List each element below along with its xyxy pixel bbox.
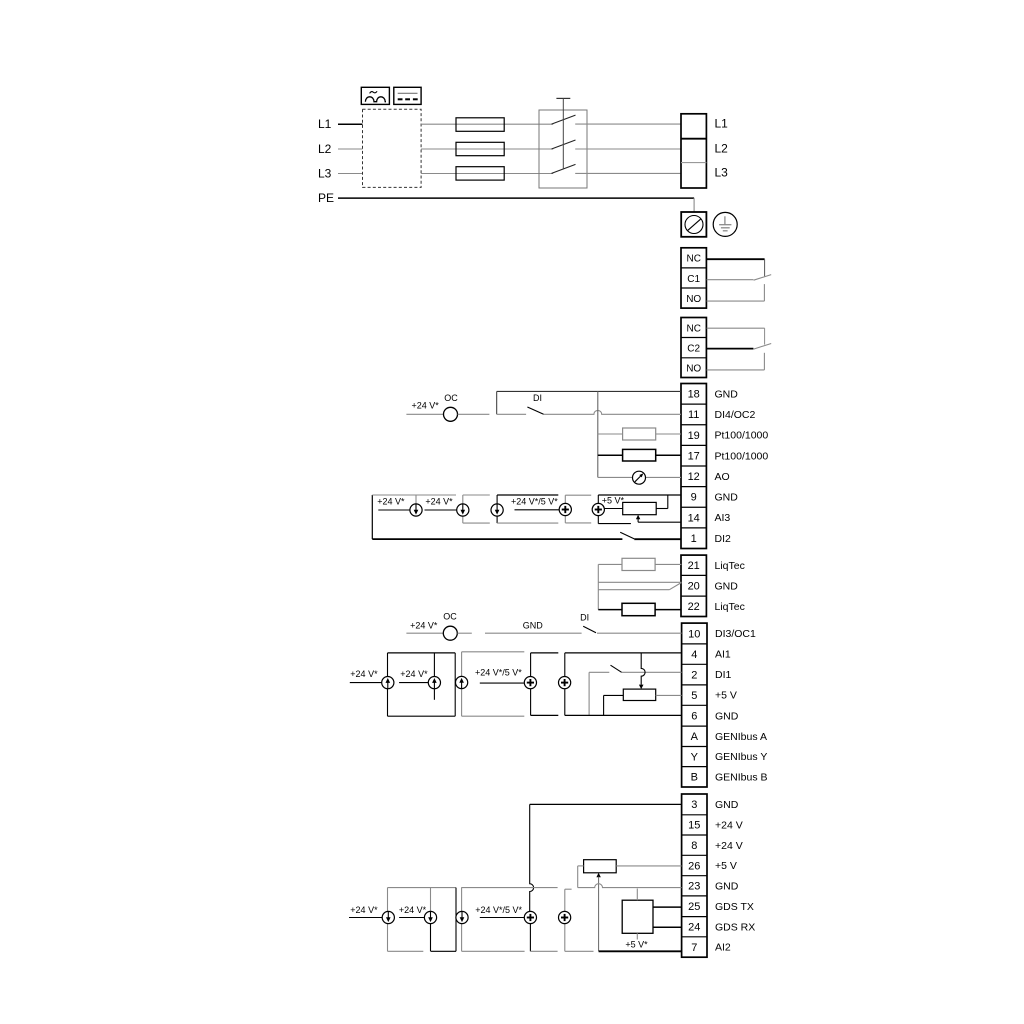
svg-text:OC: OC bbox=[443, 612, 457, 622]
svg-text:NC: NC bbox=[686, 254, 700, 265]
svg-text:+24 V*/5 V*: +24 V*/5 V* bbox=[475, 668, 522, 678]
svg-text:L3: L3 bbox=[715, 166, 729, 180]
svg-text:AO: AO bbox=[715, 471, 730, 483]
svg-text:L1: L1 bbox=[318, 117, 332, 131]
svg-text:GND: GND bbox=[715, 880, 739, 892]
svg-text:+24 V*: +24 V* bbox=[425, 497, 453, 507]
svg-text:+24 V*: +24 V* bbox=[412, 401, 440, 411]
svg-text:NO: NO bbox=[686, 363, 701, 374]
svg-text:+24 V*: +24 V* bbox=[399, 905, 427, 915]
svg-text:21: 21 bbox=[688, 560, 700, 572]
svg-text:+24 V*/5 V*: +24 V*/5 V* bbox=[475, 905, 522, 915]
svg-text:22: 22 bbox=[688, 601, 700, 613]
svg-text:3: 3 bbox=[691, 799, 697, 811]
svg-text:+5 V*: +5 V* bbox=[602, 496, 625, 506]
svg-text:9: 9 bbox=[691, 492, 697, 504]
svg-text:GND: GND bbox=[715, 388, 739, 400]
svg-text:AI1: AI1 bbox=[715, 649, 731, 661]
svg-text:GDS RX: GDS RX bbox=[715, 921, 755, 933]
svg-text:GENIbus B: GENIbus B bbox=[715, 771, 768, 783]
svg-text:20: 20 bbox=[688, 581, 700, 593]
svg-text:5: 5 bbox=[691, 690, 697, 702]
svg-text:C1: C1 bbox=[687, 274, 700, 285]
svg-text:DI: DI bbox=[533, 393, 542, 403]
svg-text:Pt100/1000: Pt100/1000 bbox=[715, 450, 769, 462]
svg-text:C2: C2 bbox=[687, 343, 700, 354]
svg-text:15: 15 bbox=[688, 820, 700, 832]
svg-text:12: 12 bbox=[688, 471, 700, 483]
svg-text:DI4/OC2: DI4/OC2 bbox=[715, 409, 756, 421]
svg-text:+24 V: +24 V bbox=[715, 840, 743, 852]
svg-text:L2: L2 bbox=[715, 141, 729, 155]
svg-text:GND: GND bbox=[523, 621, 544, 631]
svg-text:+24 V*: +24 V* bbox=[377, 497, 405, 507]
svg-text:GND: GND bbox=[715, 710, 739, 722]
svg-text:LiqTec: LiqTec bbox=[715, 601, 745, 613]
svg-text:DI3/OC1: DI3/OC1 bbox=[715, 628, 756, 640]
svg-text:+24 V*: +24 V* bbox=[350, 669, 378, 679]
svg-text:DI: DI bbox=[580, 612, 589, 622]
svg-text:+5 V: +5 V bbox=[715, 860, 737, 872]
svg-text:GDS TX: GDS TX bbox=[715, 901, 754, 913]
svg-text:DI1: DI1 bbox=[715, 669, 732, 681]
svg-text:AI3: AI3 bbox=[715, 512, 731, 524]
svg-text:2: 2 bbox=[691, 669, 697, 681]
svg-text:+24 V*: +24 V* bbox=[410, 621, 438, 631]
svg-text:11: 11 bbox=[688, 409, 699, 421]
svg-text:DI2: DI2 bbox=[715, 533, 732, 545]
svg-text:GENIbus A: GENIbus A bbox=[715, 731, 767, 743]
svg-text:26: 26 bbox=[688, 860, 700, 872]
svg-text:GND: GND bbox=[715, 580, 739, 592]
svg-text:23: 23 bbox=[688, 881, 700, 893]
svg-text:6: 6 bbox=[691, 711, 697, 723]
svg-text:19: 19 bbox=[688, 430, 700, 442]
svg-text:NO: NO bbox=[686, 294, 701, 305]
svg-text:+24 V*/5 V*: +24 V*/5 V* bbox=[511, 497, 558, 507]
svg-text:PE: PE bbox=[318, 191, 334, 205]
svg-text:1: 1 bbox=[691, 533, 697, 545]
svg-text:Y: Y bbox=[691, 751, 699, 763]
svg-text:B: B bbox=[691, 772, 698, 784]
svg-text:8: 8 bbox=[691, 840, 697, 852]
svg-text:+5 V*: +5 V* bbox=[625, 940, 648, 950]
svg-text:A: A bbox=[691, 731, 699, 743]
svg-text:4: 4 bbox=[691, 649, 697, 661]
svg-text:10: 10 bbox=[688, 628, 700, 640]
svg-text:GND: GND bbox=[715, 492, 739, 504]
svg-text:L3: L3 bbox=[318, 167, 332, 181]
svg-text:+24 V: +24 V bbox=[715, 820, 743, 832]
svg-text:18: 18 bbox=[688, 389, 700, 401]
svg-text:+24 V*: +24 V* bbox=[350, 905, 378, 915]
svg-text:17: 17 bbox=[688, 450, 700, 462]
svg-text:NC: NC bbox=[686, 323, 700, 334]
svg-text:+24 V*: +24 V* bbox=[400, 669, 428, 679]
svg-text:GENIbus Y: GENIbus Y bbox=[715, 751, 767, 763]
svg-text:GND: GND bbox=[715, 799, 739, 811]
svg-text:L1: L1 bbox=[715, 117, 729, 131]
svg-text:+5 V: +5 V bbox=[715, 690, 737, 702]
svg-text:L2: L2 bbox=[318, 142, 332, 156]
svg-text:14: 14 bbox=[688, 512, 700, 524]
svg-text:OC: OC bbox=[444, 393, 458, 403]
svg-text:AI2: AI2 bbox=[715, 942, 731, 954]
svg-text:7: 7 bbox=[691, 942, 697, 954]
svg-text:Pt100/1000: Pt100/1000 bbox=[715, 430, 769, 442]
svg-text:25: 25 bbox=[688, 901, 700, 913]
svg-text:24: 24 bbox=[688, 922, 700, 934]
svg-text:LiqTec: LiqTec bbox=[715, 560, 745, 572]
